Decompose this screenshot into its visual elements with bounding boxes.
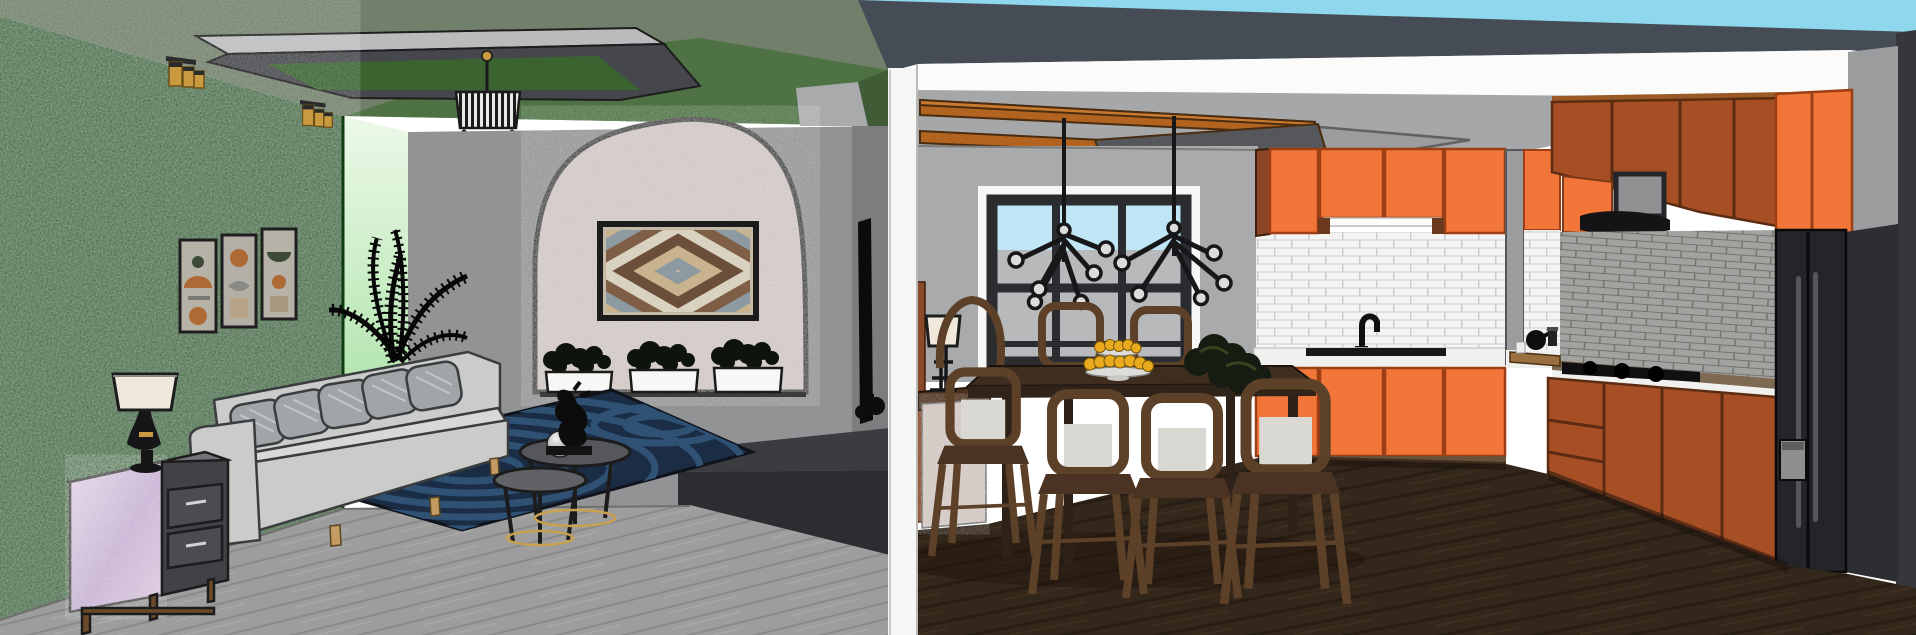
divider-wall: [888, 64, 918, 635]
upper-cabinet-side: [1256, 149, 1270, 236]
fridge-front: [1776, 230, 1846, 572]
fridge-side: [1845, 224, 1898, 582]
charcoal-wall: [1896, 30, 1916, 600]
microwave-niche: [1616, 174, 1664, 216]
corner-pillar: [1506, 150, 1524, 364]
fridge-handle-left: [1796, 276, 1801, 528]
triptych-art: [180, 229, 296, 332]
render-viewport: [0, 0, 1916, 635]
water-dispenser: [1780, 440, 1806, 480]
fridge-handle-right: [1813, 272, 1818, 522]
kitchen-dining: [895, 30, 1916, 635]
living-room: [0, 0, 918, 635]
under-cabinet-light: [1324, 218, 1441, 226]
niche-soffit-gray: [796, 82, 868, 126]
sink-basin: [1306, 348, 1446, 356]
subway-backsplash: [1256, 232, 1506, 352]
tv-screen: [858, 218, 873, 424]
cabinet-over-fridge: [1776, 90, 1852, 234]
refrigerator-corner: [1776, 30, 1916, 600]
